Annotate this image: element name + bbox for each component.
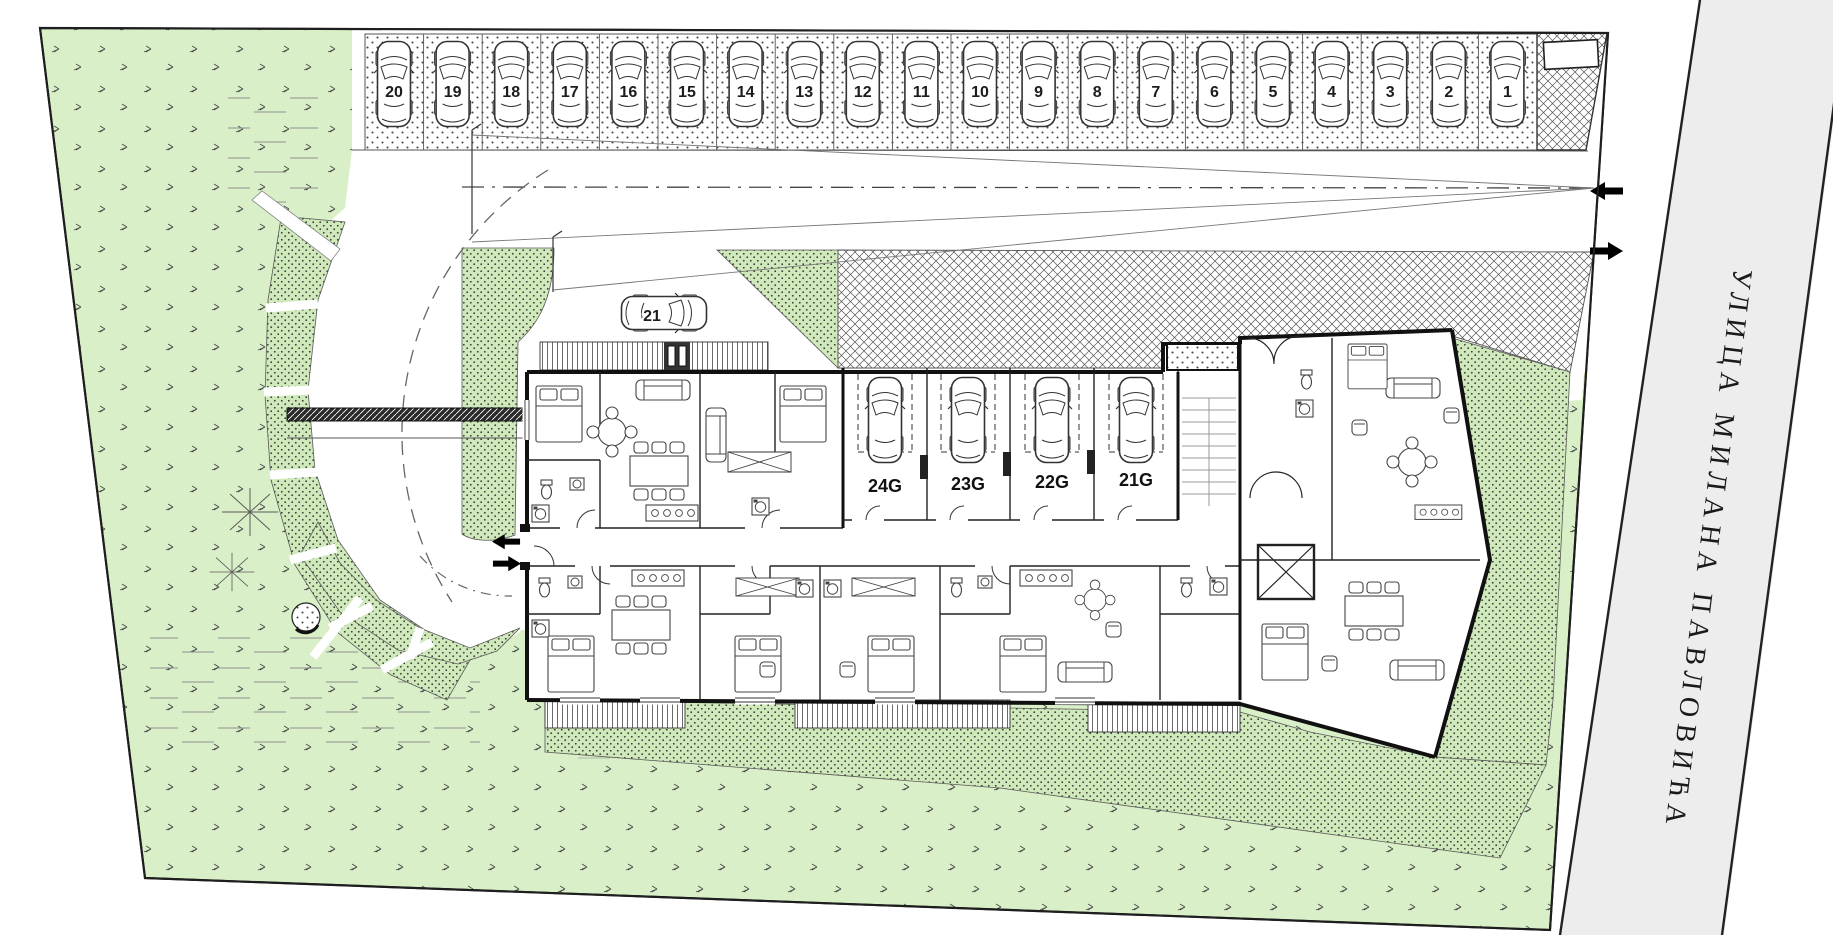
site-plan-drawing: УЛИЦА МИЛАНА ПАВЛОВИЋА 20 19 18 17 16 xyxy=(0,0,1833,935)
column xyxy=(1087,450,1095,474)
visitor-car: 21 xyxy=(622,293,707,333)
parking-stall: 20 xyxy=(374,42,414,127)
parking-space-number: 4 xyxy=(1327,84,1336,101)
parking-space-number: 2 xyxy=(1444,84,1453,101)
bed-icon xyxy=(548,636,594,692)
toilet-icon xyxy=(541,480,552,499)
kitchen-icon xyxy=(646,505,698,521)
parking-space-number: 5 xyxy=(1269,84,1278,101)
washer-icon xyxy=(1296,400,1313,417)
sofa-icon xyxy=(1058,662,1112,682)
garage-label: 21G xyxy=(1119,470,1153,490)
building: 24G 23G 22G 21G xyxy=(520,330,1490,757)
visitor-car-icon xyxy=(622,293,707,333)
wardrobe-icon xyxy=(728,452,791,472)
parking-space-number: 17 xyxy=(561,84,579,101)
bed-icon xyxy=(536,386,582,442)
garage-label: 24G xyxy=(868,476,902,496)
chair-icon xyxy=(1352,420,1367,435)
parking-space-number: 15 xyxy=(678,84,696,101)
toilet-icon xyxy=(539,578,550,597)
sink-icon xyxy=(978,576,992,588)
washer-icon xyxy=(1210,578,1227,595)
parking-row: 20 19 18 17 16 15 14 13 12 11 10 9 8 7 6… xyxy=(352,33,1607,151)
dining-table-icon xyxy=(612,596,670,654)
sofa-icon xyxy=(1390,660,1444,680)
parking-space-number: 18 xyxy=(502,84,520,101)
chair-icon xyxy=(840,662,855,677)
parking-space-number: 20 xyxy=(385,84,403,101)
toilet-icon xyxy=(1181,578,1192,597)
bed-icon xyxy=(868,636,914,692)
sofa-icon xyxy=(1386,378,1440,398)
garage-car-icon xyxy=(1116,378,1156,463)
column xyxy=(1003,452,1011,476)
bed-icon xyxy=(780,386,826,442)
sofa-icon xyxy=(706,408,726,462)
garage-car-icon xyxy=(1032,378,1072,463)
visitor-car-label: 21 xyxy=(643,308,661,325)
toilet-icon xyxy=(1301,370,1312,389)
bed-icon xyxy=(1348,344,1387,389)
parking-space-number: 19 xyxy=(444,84,462,101)
reed-marks xyxy=(228,92,318,214)
parking-space-number: 9 xyxy=(1034,84,1043,101)
parking-space-number: 3 xyxy=(1386,84,1395,101)
chair-icon xyxy=(1322,656,1337,671)
site-plan: УЛИЦА МИЛАНА ПАВЛОВИЋА 20 19 18 17 16 xyxy=(0,0,1833,935)
parking-space-number: 16 xyxy=(620,84,638,101)
parking-space-number: 8 xyxy=(1093,84,1102,101)
sofa-icon xyxy=(636,380,690,400)
washer-icon xyxy=(532,620,549,637)
garage-car-icon xyxy=(865,378,905,463)
waste-container xyxy=(1543,40,1598,70)
bed-icon xyxy=(1000,636,1046,692)
washer-icon xyxy=(532,505,549,522)
kitchen-icon xyxy=(632,570,684,586)
elevator-icon xyxy=(1258,545,1314,599)
sink-icon xyxy=(570,478,584,490)
toilet-icon xyxy=(951,578,962,597)
chair-icon xyxy=(1444,408,1459,423)
kitchen-icon xyxy=(1020,570,1072,586)
terrace-south xyxy=(1088,702,1240,732)
garage-label: 22G xyxy=(1035,472,1069,492)
washer-icon xyxy=(752,498,769,515)
parking-space-number: 14 xyxy=(737,84,755,101)
wardrobe-icon xyxy=(852,578,915,596)
parking-space-number: 12 xyxy=(854,84,872,101)
kitchen-icon xyxy=(1415,505,1462,519)
sink-icon xyxy=(568,576,582,588)
entrance-vestibule xyxy=(1167,344,1238,370)
bed-icon xyxy=(1262,624,1308,680)
garage-car-icon xyxy=(948,378,988,463)
parking-space-number: 10 xyxy=(971,84,989,101)
parking-space-number: 11 xyxy=(913,84,930,101)
garage-label: 23G xyxy=(951,474,985,494)
wardrobe-icon xyxy=(736,578,799,596)
dining-table-icon xyxy=(1345,582,1403,640)
chair-icon xyxy=(760,662,775,677)
parking-space-number: 7 xyxy=(1151,84,1160,101)
washer-icon xyxy=(824,580,841,597)
washer-icon xyxy=(796,580,813,597)
parking-space-number: 6 xyxy=(1210,84,1219,101)
chair-icon xyxy=(1106,622,1121,637)
parking-space-number: 13 xyxy=(795,84,813,101)
dining-table-icon xyxy=(630,442,688,500)
column xyxy=(920,455,928,479)
parking-space-number: 1 xyxy=(1503,84,1512,101)
terrace-north xyxy=(540,342,768,370)
